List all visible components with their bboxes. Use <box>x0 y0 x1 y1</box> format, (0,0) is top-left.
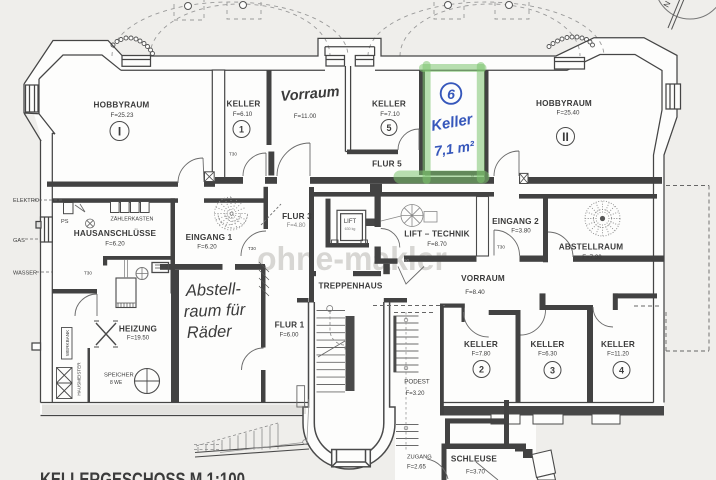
svg-text:F=6.20: F=6.20 <box>105 241 125 248</box>
svg-text:FLUR 1: FLUR 1 <box>275 321 305 330</box>
svg-text:2: 2 <box>479 364 484 374</box>
svg-text:HAUSMEISTER: HAUSMEISTER <box>77 362 82 396</box>
svg-text:LIFT: LIFT <box>344 219 357 225</box>
svg-text:F=8.40: F=8.40 <box>465 289 485 296</box>
svg-text:EINGANG 1: EINGANG 1 <box>186 233 233 242</box>
svg-text:F=6.20: F=6.20 <box>197 244 217 251</box>
svg-text:KELLER: KELLER <box>464 340 498 349</box>
svg-text:raum für: raum für <box>184 301 248 321</box>
svg-text:II: II <box>562 130 569 144</box>
svg-text:F=3.20: F=3.20 <box>406 391 426 397</box>
svg-text:5: 5 <box>386 123 391 133</box>
svg-text:GAS: GAS <box>13 238 25 244</box>
svg-text:FLUR 3: FLUR 3 <box>282 212 312 221</box>
svg-text:F=2.65: F=2.65 <box>407 465 427 471</box>
svg-text:TREPPENHAUS: TREPPENHAUS <box>318 282 382 291</box>
svg-text:T30: T30 <box>497 245 505 250</box>
svg-text:KELLER: KELLER <box>227 100 261 109</box>
svg-text:HEIZUNG: HEIZUNG <box>119 325 157 334</box>
svg-text:I: I <box>118 125 121 139</box>
svg-text:KELLERGESCHOSS M 1:100: KELLERGESCHOSS M 1:100 <box>40 470 245 480</box>
svg-text:F=6.00: F=6.00 <box>280 333 300 339</box>
svg-text:T30: T30 <box>84 271 92 276</box>
svg-text:F=25.23: F=25.23 <box>111 112 134 119</box>
svg-text:F=11.20: F=11.20 <box>607 352 629 358</box>
svg-text:HOBBYRAUM: HOBBYRAUM <box>94 101 150 110</box>
svg-text:Räder: Räder <box>187 322 234 342</box>
svg-text:PS: PS <box>61 219 69 225</box>
svg-text:VORRAUM: VORRAUM <box>461 274 505 283</box>
svg-text:F=3.70: F=3.70 <box>466 470 486 476</box>
svg-text:WERKBANK: WERKBANK <box>65 329 70 356</box>
svg-text:ABSTELLRAUM: ABSTELLRAUM <box>559 243 624 252</box>
svg-text:SCHLEUSE: SCHLEUSE <box>451 455 498 464</box>
svg-text:HAUSANSCHLÜSSE: HAUSANSCHLÜSSE <box>74 228 157 238</box>
svg-text:PODEST: PODEST <box>404 379 430 386</box>
svg-text:EINGANG 2: EINGANG 2 <box>492 217 539 226</box>
svg-text:F=7.10: F=7.10 <box>380 111 400 118</box>
svg-text:KELLER: KELLER <box>601 340 635 349</box>
svg-text:T30: T30 <box>248 246 256 251</box>
svg-text:3: 3 <box>550 365 555 375</box>
svg-text:4: 4 <box>619 365 624 375</box>
svg-text:F=6.30: F=6.30 <box>538 352 558 358</box>
svg-text:SPEICHER: SPEICHER <box>104 373 134 379</box>
svg-text:630 kg: 630 kg <box>345 227 356 231</box>
svg-text:F=3.80: F=3.80 <box>511 228 531 235</box>
svg-text:KELLER: KELLER <box>372 100 406 109</box>
svg-text:ZUGANG: ZUGANG <box>407 455 432 461</box>
svg-text:KELLER: KELLER <box>531 340 565 349</box>
svg-text:LIFT – TECHNIK: LIFT – TECHNIK <box>404 230 470 239</box>
svg-text:F=7.80: F=7.80 <box>472 352 492 358</box>
svg-text:8 WE: 8 WE <box>110 380 123 386</box>
svg-text:HOBBYRAUM: HOBBYRAUM <box>536 99 592 108</box>
svg-text:90: 90 <box>404 258 410 263</box>
svg-text:WASSER: WASSER <box>13 271 37 277</box>
svg-text:F=8.70: F=8.70 <box>427 241 447 248</box>
svg-text:F=7.30: F=7.30 <box>582 254 602 261</box>
svg-text:1: 1 <box>239 124 244 134</box>
svg-text:F=25.40: F=25.40 <box>557 110 580 117</box>
svg-text:ELEKTRO: ELEKTRO <box>13 198 40 204</box>
svg-text:F=11.00: F=11.00 <box>294 113 317 120</box>
svg-text:F=19.50: F=19.50 <box>127 336 150 342</box>
svg-text:F=6.10: F=6.10 <box>233 111 253 118</box>
svg-text:T30: T30 <box>229 152 237 157</box>
svg-text:FLUR 5: FLUR 5 <box>372 160 402 169</box>
svg-text:6: 6 <box>447 86 455 102</box>
svg-text:F=4.80: F=4.80 <box>287 223 307 229</box>
svg-text:ZÄHLERKASTEN: ZÄHLERKASTEN <box>111 216 154 223</box>
svg-text:Abstell-: Abstell- <box>185 280 242 300</box>
